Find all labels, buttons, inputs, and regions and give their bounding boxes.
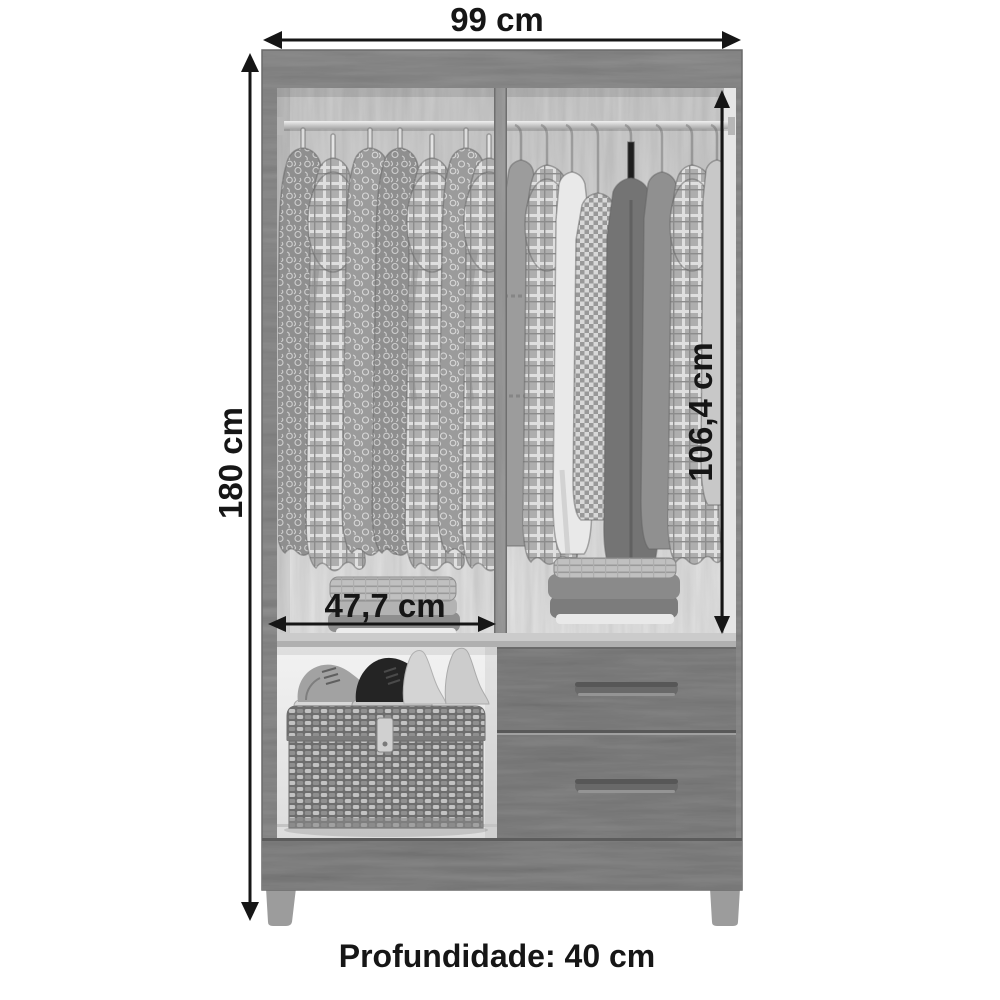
arrowhead-left (263, 31, 282, 49)
folded-garment (556, 614, 674, 624)
wardrobe-leg-right (710, 888, 740, 926)
wardrobe-leg-left (266, 888, 296, 926)
rod-bracket-right (728, 117, 735, 135)
hanging-clothes-left (275, 128, 521, 571)
trunk-clasp-pin (383, 742, 388, 747)
trunk-body (289, 741, 483, 828)
arrowhead-bottom (241, 902, 259, 921)
center-divider-edge-left (494, 88, 496, 647)
width-dimension: 99 cm (263, 1, 741, 49)
trunk-clasp (377, 718, 393, 752)
folded-garment (554, 558, 676, 578)
drawer-fronts (497, 647, 736, 838)
inner-height-dimension-label: 106,4 cm (682, 342, 719, 481)
interior-right-wall (722, 88, 736, 635)
arrowhead-top (241, 53, 259, 72)
drawers (497, 647, 736, 838)
depth-label: Profundidade: 40 cm (339, 938, 656, 974)
folded-clothes-right (548, 558, 680, 624)
rod-bracket-left (277, 117, 284, 135)
drawer-seam-highlight (497, 733, 736, 735)
center-divider-edge-right (506, 88, 508, 647)
height-dimension-label: 180 cm (212, 407, 249, 519)
drawer-top-edge (497, 647, 736, 649)
center-divider (494, 88, 507, 647)
arrowhead-right (722, 31, 741, 49)
drawer-seam (497, 730, 736, 733)
drawer-handle-top (575, 682, 678, 696)
product-dimension-diagram: 99 cm 180 cm 106,4 cm 47,7 cm Profundida… (0, 0, 1000, 1000)
drawer-handle-bottom (575, 779, 678, 793)
base-panel (262, 838, 742, 890)
wicker-trunk (287, 706, 485, 828)
height-dimension: 180 cm (212, 53, 259, 921)
width-dimension-label: 99 cm (450, 1, 544, 38)
wardrobe (262, 50, 742, 926)
trunk-base-band (289, 818, 483, 828)
wardrobe-dimension-diagram: 99 cm 180 cm 106,4 cm 47,7 cm Profundida… (0, 0, 1000, 1000)
inner-width-dimension-label: 47,7 cm (324, 587, 445, 624)
